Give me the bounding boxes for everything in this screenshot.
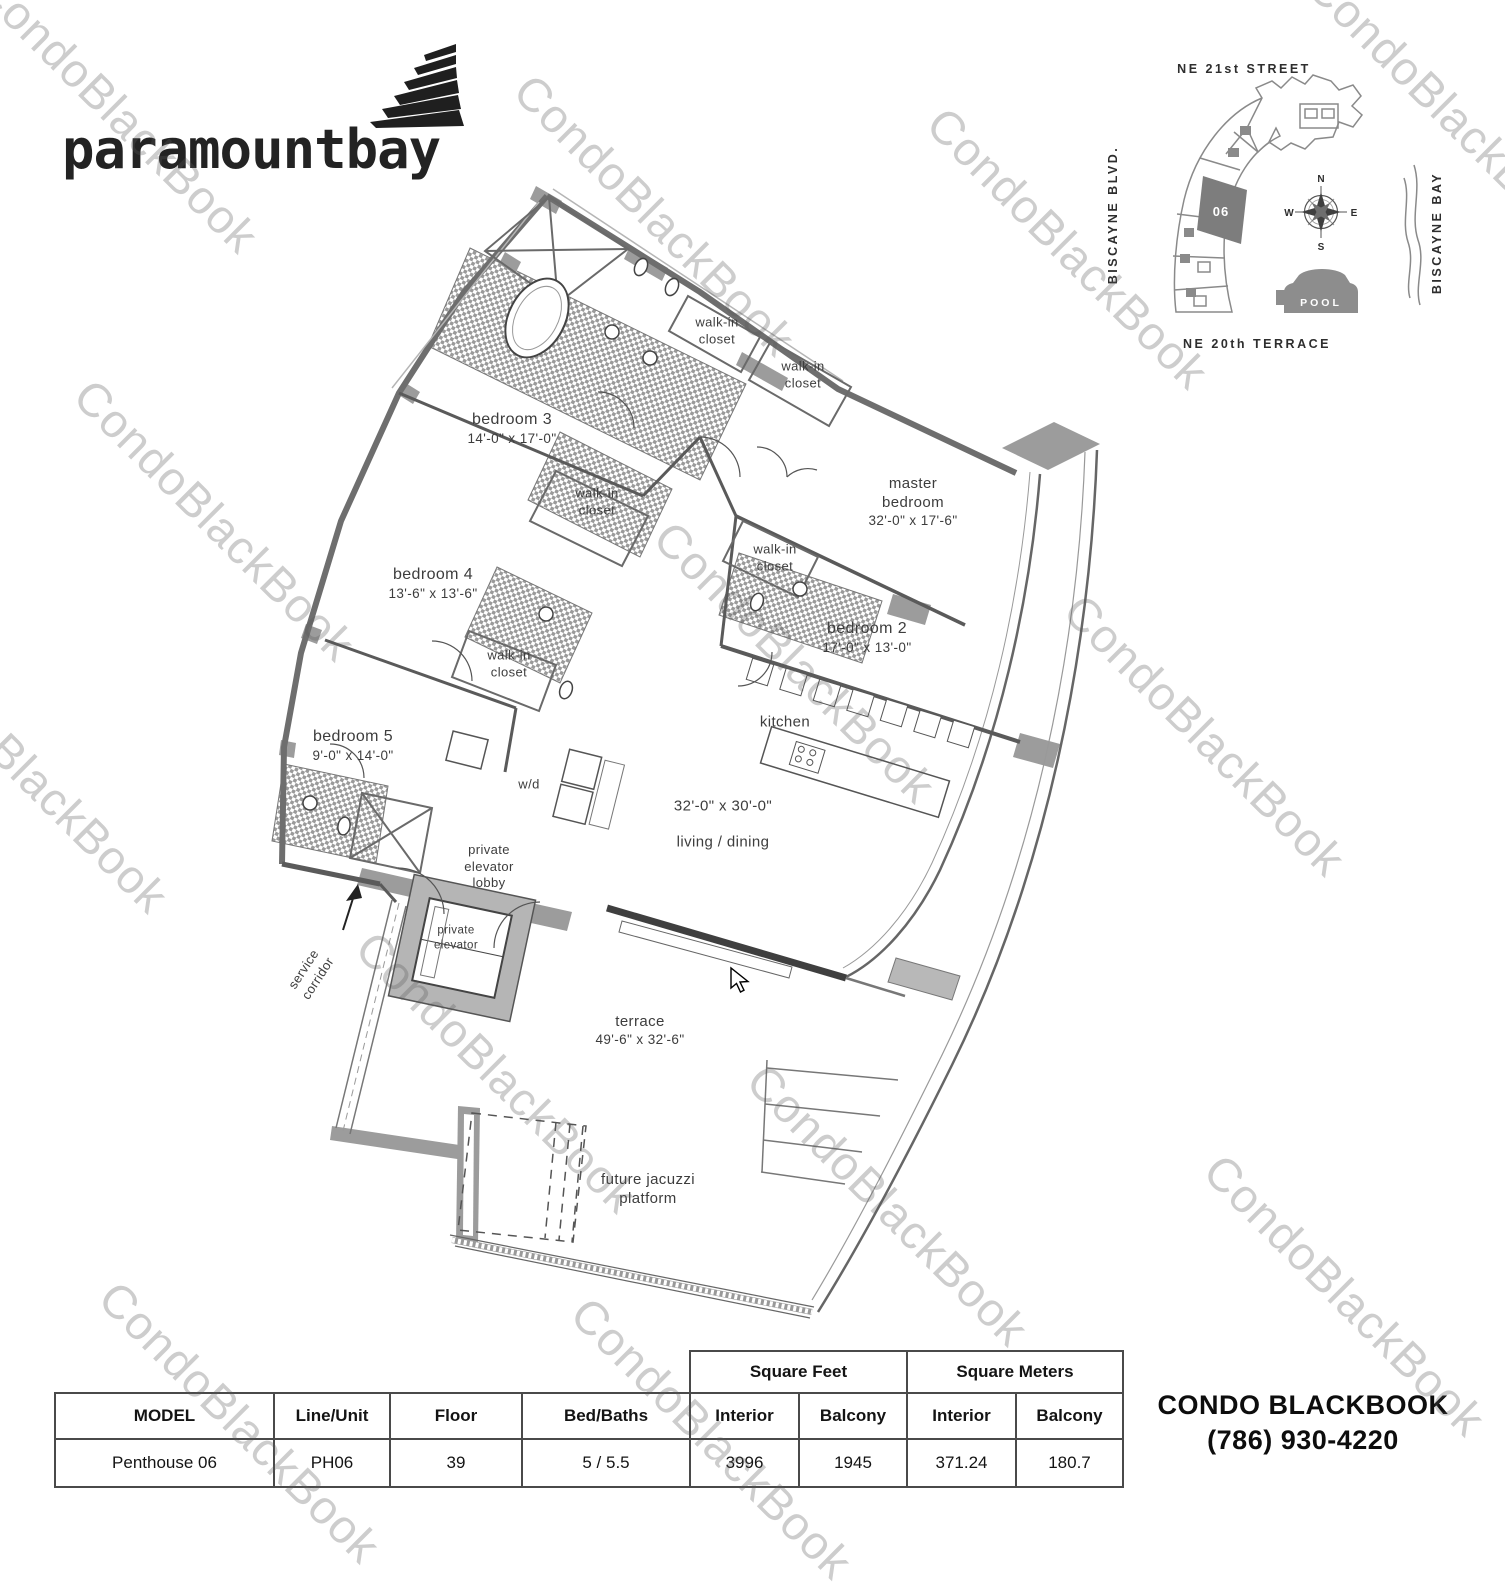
street-bottom-label: NE 20th TERRACE — [1183, 337, 1331, 351]
compass-e-label: E — [1351, 208, 1358, 219]
logo-sail-icon — [368, 42, 468, 128]
service-corridor-walls — [336, 900, 406, 1134]
walk-in-closet-label-2: walk-in closet — [781, 358, 824, 391]
kitchen-fixtures — [746, 658, 974, 817]
walk-in-closet-label-1: walk-in closet — [695, 314, 738, 347]
table-data-row: Penthouse 06 PH06 39 5 / 5.5 3996 1945 3… — [55, 1439, 1123, 1487]
curved-window-walls — [812, 450, 1097, 1312]
unit-spec-table: Square Feet Square Meters MODEL Line/Uni… — [54, 1350, 1124, 1488]
col-header-floor: Floor — [390, 1393, 522, 1439]
room-label-living-dining: living / dining — [677, 832, 770, 851]
pool-label: POOL — [1300, 297, 1342, 309]
unit-06-label: 06 — [1213, 204, 1229, 219]
wd-label: w/d — [518, 777, 539, 794]
floorplan-flyer: { "brand": { "logo_text": "paramountbay"… — [0, 0, 1505, 1503]
private-elevator-lobby-label: private elevator lobby — [464, 842, 513, 892]
mouse-cursor-icon — [729, 966, 755, 994]
living-dims-label: 32'-0" x 30'-0" — [674, 796, 772, 815]
cell-sm-balcony: 180.7 — [1016, 1439, 1123, 1487]
cell-sf-balcony: 1945 — [799, 1439, 907, 1487]
watermark-text: CondoBlackBook — [0, 620, 180, 924]
street-top-label: NE 21st STREET — [1177, 62, 1311, 76]
footer-brand-block: CONDO BLACKBOOK (786) 930-4220 — [1128, 1390, 1478, 1456]
cell-line-unit: PH06 — [274, 1439, 390, 1487]
room-label-bedroom3: bedroom 3 14'-0" x 17'-0" — [467, 410, 556, 448]
terrace-boundary — [607, 908, 905, 996]
washer-dryer-units — [553, 749, 625, 830]
cell-floor: 39 — [390, 1439, 522, 1487]
footer-phone-number: (786) 930-4220 — [1128, 1425, 1478, 1456]
table-header-row: MODEL Line/Unit Floor Bed/Baths Interior… — [55, 1393, 1123, 1439]
table-group-header-row: Square Feet Square Meters — [55, 1351, 1123, 1393]
compass-n-label: N — [1317, 174, 1324, 185]
compass-icon: N S E W — [1284, 174, 1357, 253]
footer-company-name: CONDO BLACKBOOK — [1128, 1390, 1478, 1421]
private-elevator-label: private elevator — [434, 923, 478, 952]
cell-sm-interior: 371.24 — [907, 1439, 1016, 1487]
group-header-square-feet: Square Feet — [690, 1351, 907, 1393]
room-label-future-jacuzzi: future jacuzzi platform — [601, 1170, 695, 1208]
walk-in-closet-label-5: walk-in closet — [487, 647, 530, 680]
col-header-sm-interior: Interior — [907, 1393, 1016, 1439]
room-label-master-bedroom: master bedroom 32'-0" x 17'-6" — [868, 474, 957, 530]
lobby-cabinet — [446, 731, 488, 769]
walk-in-closet-label-4: walk-in closet — [753, 541, 796, 574]
terrace-steps — [761, 1060, 898, 1184]
room-label-bedroom5: bedroom 5 9'-0" x 14'-0" — [312, 727, 393, 765]
cell-model: Penthouse 06 — [55, 1439, 274, 1487]
room-label-kitchen: kitchen — [760, 712, 810, 731]
col-header-model: MODEL — [55, 1393, 274, 1439]
col-header-sf-balcony: Balcony — [799, 1393, 907, 1439]
terrace-railing — [450, 1235, 814, 1318]
cell-sf-interior: 3996 — [690, 1439, 799, 1487]
walk-in-closet-label-3: walk-in closet — [575, 485, 618, 518]
col-header-sm-balcony: Balcony — [1016, 1393, 1123, 1439]
compass-w-label: W — [1284, 208, 1294, 219]
room-label-terrace: terrace 49'-6" x 32'-6" — [595, 1012, 684, 1048]
col-header-sf-interior: Interior — [690, 1393, 799, 1439]
cell-bed-baths: 5 / 5.5 — [522, 1439, 690, 1487]
site-map: NE 21st STREET BISCAYNE BLVD. BISCAYNE B… — [1090, 40, 1505, 380]
pool-shape: POOL — [1276, 269, 1358, 313]
room-label-bedroom2: bedroom 2 17'-0" x 13'-0" — [822, 619, 911, 657]
room-label-bedroom4: bedroom 4 13'-6" x 13'-6" — [388, 565, 477, 603]
bay-waves-icon — [1404, 165, 1421, 305]
service-corridor-arrow-icon — [343, 884, 362, 930]
street-right-label: BISCAYNE BAY — [1430, 172, 1444, 294]
col-header-line-unit: Line/Unit — [274, 1393, 390, 1439]
wall-blocks — [279, 186, 1100, 1244]
compass-s-label: S — [1318, 242, 1325, 253]
col-header-bed-baths: Bed/Baths — [522, 1393, 690, 1439]
group-header-square-meters: Square Meters — [907, 1351, 1123, 1393]
